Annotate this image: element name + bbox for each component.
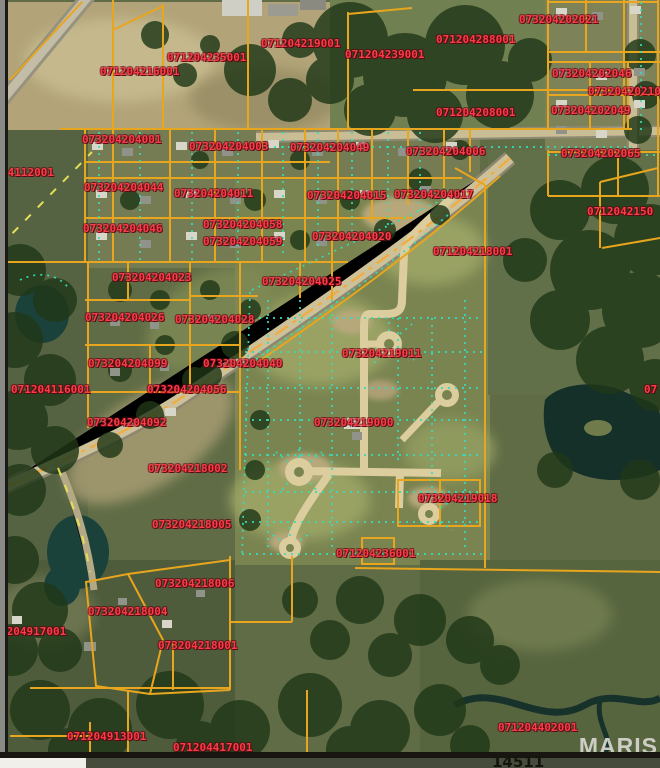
parcel-labels-layer: 0712042160010712042350010712042190010712… <box>0 0 660 752</box>
map-frame: 0712042160010712042350010712042190010712… <box>0 0 660 768</box>
bottom-note: 14511 <box>492 753 544 768</box>
parcel-label: 073204204026 <box>85 311 164 324</box>
parcel-label: 073204219011 <box>342 347 421 360</box>
parcel-label: 073204202049 <box>551 104 630 117</box>
parcel-label: 071204236001 <box>336 547 415 560</box>
parcel-label: 073204204001 <box>82 133 161 146</box>
parcel-label: 073204218004 <box>88 605 167 618</box>
parcel-label: 073204218005 <box>152 518 231 531</box>
parcel-label: 071204219001 <box>261 37 340 50</box>
bottom-strip <box>0 758 660 768</box>
parcel-label: 073204204028 <box>175 313 254 326</box>
parcel-label: 073204204099 <box>88 357 167 370</box>
parcel-label: 071204239001 <box>345 48 424 61</box>
parcel-map: 0712042160010712042350010712042190010712… <box>0 0 660 752</box>
parcel-label: 07320420210 <box>588 85 660 98</box>
parcel-label: 073204204003 <box>189 140 268 153</box>
parcel-label: 073204218001 <box>158 639 237 652</box>
parcel-label: 073204204023 <box>112 271 191 284</box>
maris-watermark: MARIS <box>579 733 658 752</box>
parcel-label: 071204235001 <box>167 51 246 64</box>
parcel-label: 073204204011 <box>174 187 253 200</box>
parcel-label: 073204202046 <box>552 67 631 80</box>
parcel-label: 073204204015 <box>307 189 386 202</box>
parcel-label: 07 <box>644 383 657 396</box>
parcel-label: 073204218006 <box>155 577 234 590</box>
parcel-label: 073204202065 <box>561 147 640 160</box>
parcel-label: 073204204092 <box>87 416 166 429</box>
parcel-label: 1204917001 <box>0 625 66 638</box>
parcel-label: 073204218002 <box>148 462 227 475</box>
parcel-label: 073204204025 <box>262 275 341 288</box>
parcel-label: 073204204017 <box>394 188 473 201</box>
parcel-label: 073204204056 <box>147 383 226 396</box>
parcel-label: 073204204020 <box>312 230 391 243</box>
parcel-label: 073204219018 <box>418 492 497 505</box>
parcel-label: 071204218001 <box>433 245 512 258</box>
parcel-label: 04112001 <box>1 166 54 179</box>
parcel-label: 071204208001 <box>436 106 515 119</box>
parcel-label: 073204204059 <box>203 235 282 248</box>
parcel-label: 073204219000 <box>314 416 393 429</box>
left-border-inner <box>5 0 8 752</box>
bottom-strip-white <box>0 758 86 768</box>
parcel-label: 071204913001 <box>67 730 146 743</box>
parcel-label: 073204204058 <box>203 218 282 231</box>
parcel-label: 073204204006 <box>406 145 485 158</box>
parcel-label: 071204216001 <box>100 65 179 78</box>
parcel-label: 073204204046 <box>83 222 162 235</box>
parcel-label: 071204116001 <box>11 383 90 396</box>
parcel-label: 073204204040 <box>203 357 282 370</box>
parcel-label: 073204202021 <box>519 13 598 26</box>
parcel-label: 071204417001 <box>173 741 252 752</box>
parcel-label: 073204204049 <box>290 141 369 154</box>
parcel-label: 071204402001 <box>498 721 577 734</box>
parcel-label: 071204288001 <box>436 33 515 46</box>
parcel-label: 0712042150 <box>587 205 653 218</box>
parcel-label: 073204204044 <box>84 181 163 194</box>
